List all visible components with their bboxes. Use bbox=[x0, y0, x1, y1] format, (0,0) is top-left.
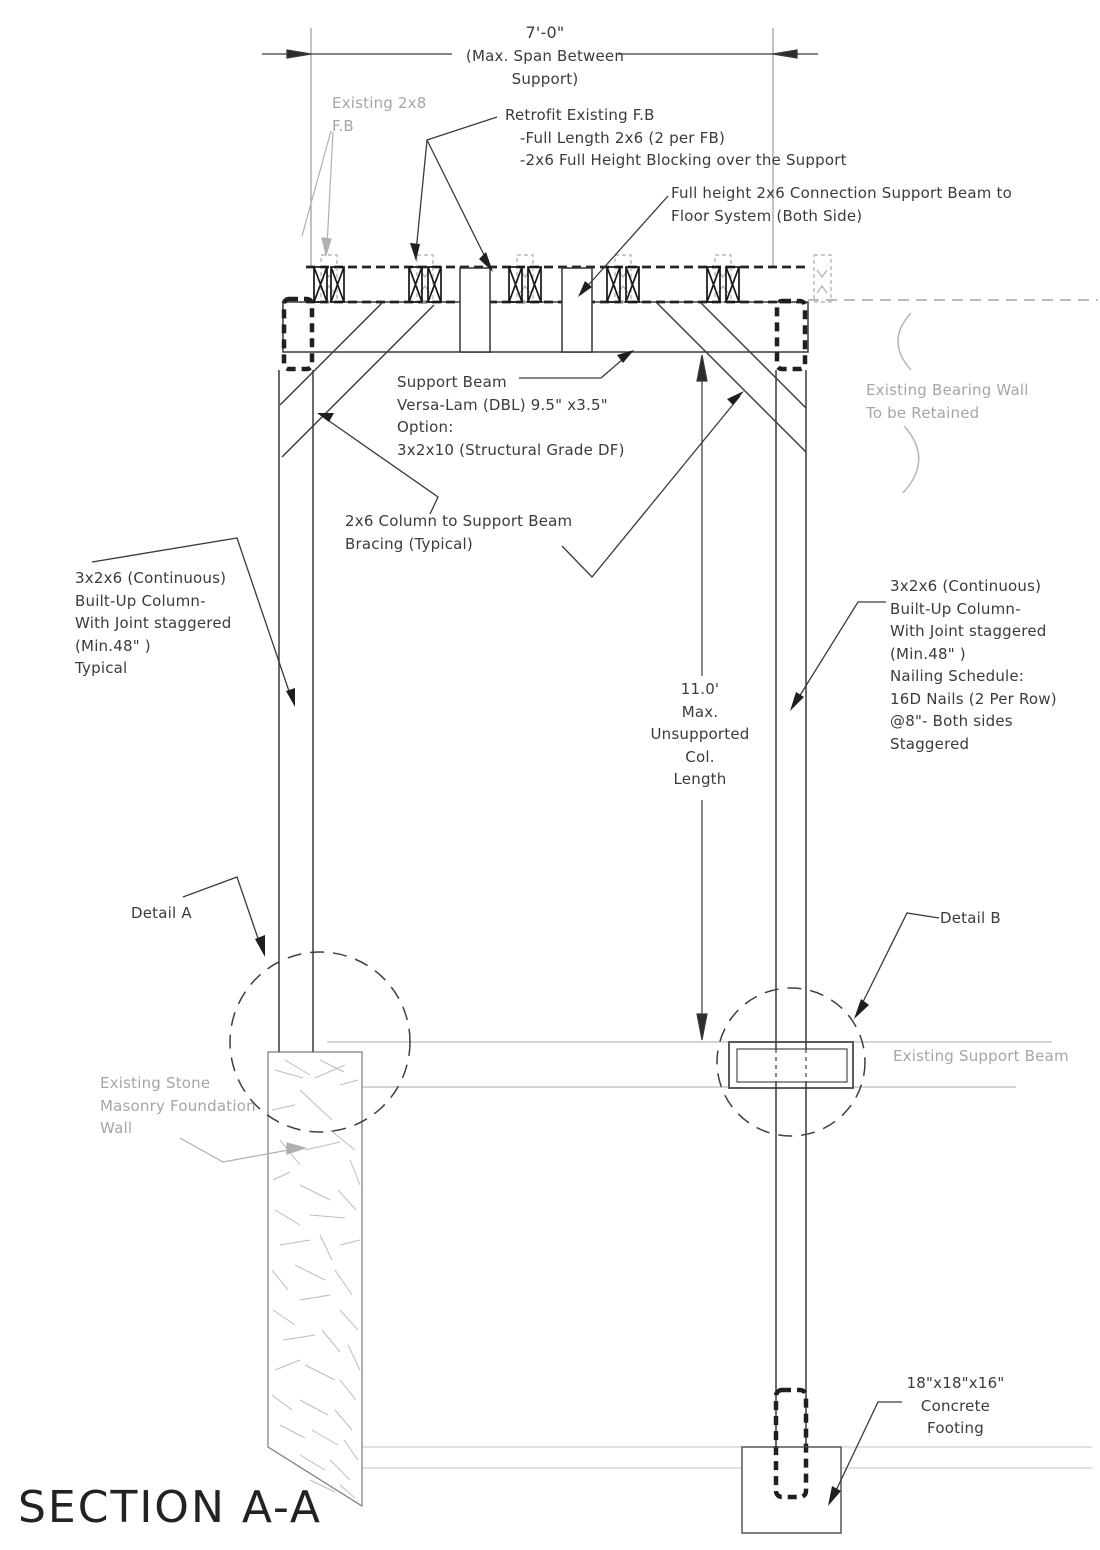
bearing-wall-label: Existing Bearing Wall To be Retained bbox=[866, 379, 1029, 424]
concrete-footing-outline bbox=[742, 1447, 841, 1533]
dimension-value: 7'-0" bbox=[455, 21, 635, 45]
detail-a-label: Detail A bbox=[131, 902, 192, 925]
right-column-lines bbox=[776, 370, 806, 1447]
built-up-column-right-label: 3x2x6 (Continuous) Built-Up Column- With… bbox=[890, 575, 1057, 755]
drawing-linework bbox=[0, 0, 1100, 1550]
built-up-columns bbox=[279, 370, 313, 1052]
full-height-connection-label: Full height 2x6 Connection Support Beam … bbox=[671, 182, 1012, 227]
built-up-column-left-label: 3x2x6 (Continuous) Built-Up Column- With… bbox=[75, 567, 232, 680]
blocking-rects bbox=[314, 267, 739, 302]
existing-fb-leader bbox=[302, 131, 333, 255]
section-a-a-drawing: 7'-0" (Max. Span Between Support) Existi… bbox=[0, 0, 1100, 1550]
support-beam-label: Support Beam Versa-Lam (DBL) 9.5" x3.5" … bbox=[397, 371, 625, 461]
detail-b-label: Detail B bbox=[940, 907, 1001, 930]
stone-foundation-wall bbox=[268, 1052, 362, 1506]
blocking-pairs bbox=[314, 267, 739, 302]
existing-support-beam-label: Existing Support Beam bbox=[893, 1045, 1069, 1068]
beam-connector bbox=[729, 1042, 853, 1088]
stone-wall-label: Existing Stone Masonry Foundation Wall bbox=[100, 1072, 256, 1140]
concrete-footing-label: 18"x18"x16" Concrete Footing bbox=[888, 1372, 1023, 1440]
support-beam-body bbox=[283, 302, 808, 352]
unsupported-length-label: 11.0' Max. Unsupported Col. Length bbox=[625, 678, 775, 791]
section-title: SECTION A-A bbox=[18, 1482, 322, 1533]
dimension-note: (Max. Span Between Support) bbox=[440, 45, 650, 90]
existing-fb-label: Existing 2x8 F.B bbox=[332, 92, 427, 137]
blocking-x-hatch bbox=[314, 267, 739, 302]
bracing-label: 2x6 Column to Support Beam Bracing (Typi… bbox=[345, 510, 572, 555]
basement-slab-lines bbox=[362, 1447, 1092, 1468]
retrofit-label: Retrofit Existing F.B -Full Length 2x6 (… bbox=[505, 104, 847, 172]
